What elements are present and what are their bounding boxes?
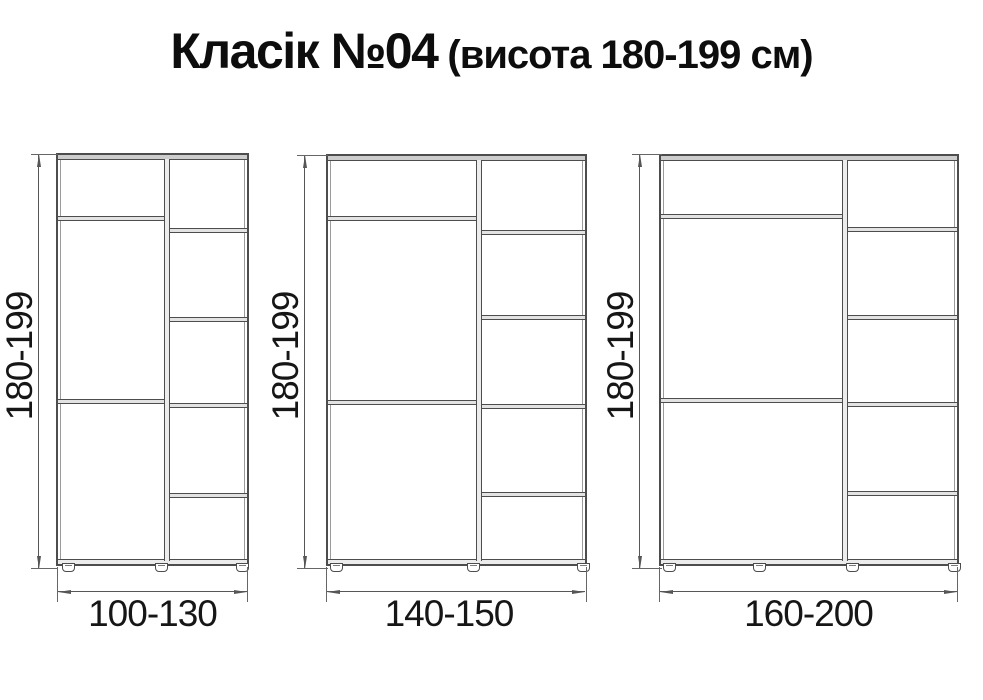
adjustable-foot xyxy=(155,563,168,572)
cabinet-bottom-panel xyxy=(58,559,247,564)
wardrobe-variant-3 xyxy=(659,154,959,566)
shelf xyxy=(661,214,842,219)
shelf xyxy=(482,492,585,497)
adjustable-foot xyxy=(577,563,590,572)
adjustable-foot xyxy=(62,563,75,572)
shelf xyxy=(848,402,957,407)
dimension-extension-tick xyxy=(632,568,662,569)
height-dimension-label: 180-199 xyxy=(265,256,307,456)
shelf xyxy=(58,216,164,221)
adjustable-foot xyxy=(846,563,859,572)
cabinet-bottom-panel xyxy=(328,559,585,564)
adjustable-foot xyxy=(663,563,676,572)
dimension-extension-tick xyxy=(297,568,328,569)
shelf xyxy=(848,315,957,320)
height-dimension-label: 180-199 xyxy=(600,256,642,456)
dimension-extension-tick xyxy=(31,568,58,569)
shelf xyxy=(58,399,164,404)
height-dimension-label: 180-199 xyxy=(0,256,41,456)
shelf xyxy=(848,227,957,232)
dimension-extension-tick xyxy=(632,154,662,155)
dimension-extension-line xyxy=(957,567,958,602)
wardrobe-variant-1 xyxy=(56,153,249,566)
dimension-extension-tick xyxy=(297,155,328,156)
page-title: Класік №04(висота 180-199 см) xyxy=(0,22,983,80)
cabinet-top-panel xyxy=(58,155,247,160)
width-dimension-line xyxy=(660,591,957,592)
width-dimension-line xyxy=(327,591,585,592)
shelf xyxy=(482,404,585,409)
cabinet-vertical-divider xyxy=(842,160,848,561)
cabinet-bottom-panel xyxy=(661,559,957,564)
wardrobe-dimensions-diagram: Класік №04(висота 180-199 см) 180-199 10… xyxy=(0,0,983,700)
dimension-extension-line xyxy=(586,567,587,602)
shelf xyxy=(661,398,842,403)
cabinet-vertical-divider xyxy=(476,160,482,561)
shelf xyxy=(170,403,247,408)
wardrobe-variant-2 xyxy=(326,154,587,566)
shelf xyxy=(328,400,476,405)
adjustable-foot xyxy=(753,563,766,572)
adjustable-foot xyxy=(467,563,480,572)
adjustable-foot xyxy=(330,563,343,572)
cabinet-top-panel xyxy=(661,156,957,161)
dimension-extension-tick xyxy=(31,154,58,155)
shelf xyxy=(170,228,247,233)
shelf xyxy=(482,230,585,235)
dimension-extension-line xyxy=(247,567,248,602)
product-name: Класік №04 xyxy=(170,23,437,79)
cabinet-vertical-divider xyxy=(164,159,170,561)
shelf xyxy=(848,491,957,496)
shelf xyxy=(328,216,476,221)
shelf xyxy=(170,493,247,498)
height-range-note: (висота 180-199 см) xyxy=(447,33,812,77)
cabinet-top-panel xyxy=(328,156,585,161)
width-dimension-label: 160-200 xyxy=(660,594,957,634)
width-dimension-label: 100-130 xyxy=(58,594,247,634)
shelf xyxy=(482,315,585,320)
width-dimension-label: 140-150 xyxy=(320,594,578,634)
shelf xyxy=(170,317,247,322)
width-dimension-line xyxy=(58,591,247,592)
adjustable-foot xyxy=(948,563,961,572)
